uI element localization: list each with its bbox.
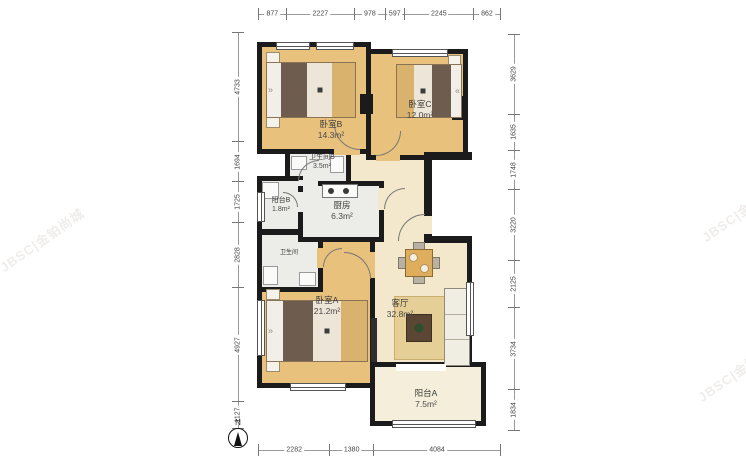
wall	[424, 152, 432, 216]
dining-table-icon	[398, 242, 438, 282]
dimension: 3220	[508, 189, 520, 260]
label-bedroom-c: 卧室C 12.0m²	[407, 99, 433, 121]
dimension: 2227	[286, 8, 355, 20]
room-name: 卧室C	[407, 99, 433, 110]
stove-icon	[322, 184, 358, 198]
watermark: JBSC|金铂尚城	[0, 203, 88, 276]
dimension: 2125	[508, 260, 520, 307]
window	[257, 300, 265, 356]
sink-icon	[299, 272, 316, 286]
wall-column	[360, 94, 373, 114]
room-name: 卫生间	[280, 250, 298, 258]
room-area: 32.8m²	[387, 309, 413, 320]
door-bedroom-a	[370, 252, 375, 278]
room-area: 1.8m²	[272, 205, 291, 214]
dimension: 1748	[508, 150, 520, 189]
room-area: 3.5m²	[309, 162, 335, 171]
dimension: 978	[354, 8, 385, 20]
dimension: 862	[473, 8, 500, 20]
label-bath-b: 卫生间B 3.5m²	[309, 153, 335, 171]
compass: N	[224, 419, 252, 448]
compass-needle-icon	[228, 428, 248, 448]
dimension: 4084	[373, 444, 500, 456]
window	[466, 282, 474, 336]
dimension: 1380	[329, 444, 373, 456]
dimension: 2282	[258, 444, 329, 456]
door-balcony-b	[297, 192, 303, 212]
label-bedroom-b: 卧室B 14.3m²	[318, 119, 344, 141]
label-kitchen: 厨房 6.3m²	[331, 200, 353, 222]
window	[392, 49, 448, 57]
room-name: 卧室B	[318, 119, 344, 130]
dimension: 4733	[232, 32, 244, 141]
window	[290, 383, 346, 391]
room-name: 阳台A	[415, 388, 438, 399]
room-area: 7.5m²	[415, 399, 438, 410]
door-bedroom-b	[334, 149, 360, 155]
dimension: 1694	[232, 141, 244, 181]
room-area: 6.3m²	[331, 211, 353, 222]
label-balcony-b: 阳台B 1.8m²	[272, 196, 291, 214]
nightstand-icon	[266, 117, 280, 128]
window	[276, 42, 310, 50]
bed-icon	[266, 62, 356, 118]
dimension: 1725	[232, 181, 244, 222]
label-living: 客厅 32.8m²	[387, 298, 413, 320]
dimension: 3734	[508, 307, 520, 389]
watermark: JBSC|金铂尚城	[694, 333, 746, 406]
label-bedroom-a: 卧室A 21.2m²	[314, 295, 340, 317]
balcony-slider-door	[396, 364, 446, 371]
tv-icon	[371, 318, 377, 362]
dimension-chain-bottom: 2282 1380 4084	[258, 444, 501, 456]
dimension-chain-top: 877 2227 978 597 2245 862	[258, 8, 501, 20]
label-bath: 卫生间	[280, 250, 298, 258]
room-name: 卫生间B	[309, 153, 335, 162]
room-name: 阳台B	[272, 196, 291, 205]
room-area: 21.2m²	[314, 306, 340, 317]
toilet-icon	[263, 266, 278, 285]
window	[316, 42, 354, 50]
dimension-chain-left: 4733 1694 1725 2828 4927 1127	[232, 32, 244, 429]
nightstand-icon	[266, 289, 280, 300]
floor-plan: JBSC|金铂尚城 JBSC|金铂尚城 JBSC|金铂尚城	[0, 0, 746, 460]
dimension: 3629	[508, 34, 520, 114]
door-bedroom-c	[376, 155, 400, 161]
room-area: 14.3m²	[318, 130, 344, 141]
dimension: 877	[258, 8, 286, 20]
dimension: 2828	[232, 222, 244, 288]
room-name: 厨房	[331, 200, 353, 211]
dimension-chain-right: 3629 1635 1748 3220 2125 3734 1834	[508, 34, 520, 431]
dimension: 2245	[404, 8, 473, 20]
window	[257, 192, 265, 222]
nightstand-icon	[266, 361, 280, 372]
room-name: 客厅	[387, 298, 413, 309]
dimension: 597	[385, 8, 404, 20]
compass-north-label: N	[224, 419, 252, 427]
dimension: 4927	[232, 287, 244, 401]
watermark: JBSC|金铂尚城	[698, 173, 746, 246]
room-area: 12.0m²	[407, 110, 433, 121]
dimension: 1834	[508, 389, 520, 430]
room-name: 卧室A	[314, 295, 340, 306]
dimension: 1635	[508, 114, 520, 150]
label-balcony-a: 阳台A 7.5m²	[415, 388, 438, 410]
window	[392, 420, 476, 428]
